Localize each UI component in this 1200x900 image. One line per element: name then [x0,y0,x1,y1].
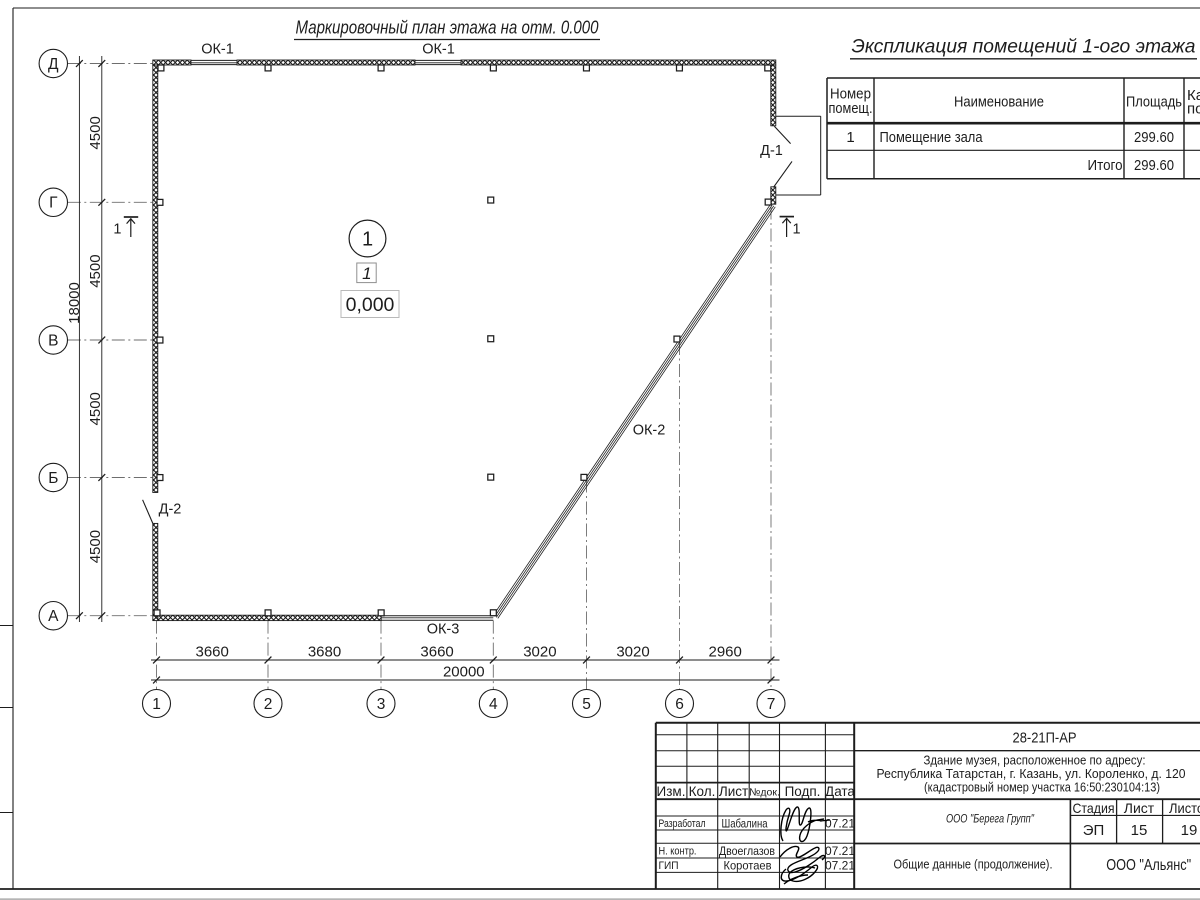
svg-text:7: 7 [767,696,776,713]
svg-text:1: 1 [362,228,373,250]
svg-text:Общие данные (продолжение).: Общие данные (продолжение). [894,857,1053,872]
svg-text:Двоеглазов: Двоеглазов [719,844,775,858]
svg-text:07.21: 07.21 [825,844,855,858]
svg-text:299.60: 299.60 [1134,157,1174,174]
svg-text:Листов: Листов [1169,800,1200,816]
svg-text:Коротаев: Коротаев [724,859,772,873]
svg-text:4500: 4500 [87,254,104,287]
svg-text:07.21: 07.21 [825,859,855,873]
svg-text:Лист: Лист [719,784,748,799]
svg-text:№док.: №док. [749,787,780,799]
svg-text:Б: Б [48,470,58,487]
svg-text:Экспликация помещений 1-ого эт: Экспликация помещений 1-ого этажа [852,36,1196,58]
svg-text:Изм.: Изм. [657,784,686,799]
svg-text:Стадия: Стадия [1073,800,1115,816]
svg-text:ЭП: ЭП [1083,822,1105,839]
svg-text:19: 19 [1181,822,1198,839]
svg-text:помещ.: помещ. [829,100,873,117]
svg-text:Н. контр.: Н. контр. [659,846,697,858]
svg-text:3680: 3680 [308,644,341,661]
svg-text:Д-1: Д-1 [760,143,783,159]
svg-text:Шабалина: Шабалина [722,817,768,831]
svg-text:20000: 20000 [443,664,485,681]
svg-text:Лист: Лист [1124,800,1155,816]
svg-text:Маркировочный план этажа на от: Маркировочный план этажа на отм. 0.000 [296,18,599,38]
svg-text:Г: Г [49,195,58,212]
svg-text:Помещение зала: Помещение зала [880,129,984,146]
svg-text:ОК-3: ОК-3 [427,622,460,638]
svg-text:(кадастровый номер участка 16:: (кадастровый номер участка 16:50:230104:… [924,779,1160,794]
svg-text:2960: 2960 [709,644,742,661]
svg-text:Разработал: Разработал [659,818,706,830]
svg-text:07.21: 07.21 [825,817,855,831]
svg-text:ГИП: ГИП [659,860,679,872]
svg-text:ООО "Берега Групп": ООО "Берега Групп" [946,812,1034,826]
svg-text:299.60: 299.60 [1134,129,1174,146]
svg-text:4500: 4500 [87,530,104,563]
svg-text:ОК-1: ОК-1 [422,42,455,58]
svg-text:5: 5 [582,696,591,713]
svg-text:18000: 18000 [66,282,83,324]
svg-text:Д-2: Д-2 [159,502,182,518]
svg-text:1: 1 [846,129,854,146]
svg-text:ООО "Альянс": ООО "Альянс" [1106,857,1191,874]
svg-text:А: А [48,608,59,625]
svg-text:3: 3 [377,696,386,713]
svg-text:ОК-1: ОК-1 [201,42,234,58]
svg-text:0,000: 0,000 [346,294,395,316]
svg-text:2: 2 [264,696,273,713]
svg-text:пож.: пож. [1187,101,1200,118]
svg-text:1: 1 [152,696,161,713]
svg-text:1: 1 [113,222,121,238]
svg-text:Подп.: Подп. [785,784,821,799]
svg-text:3020: 3020 [616,644,649,661]
svg-text:Наименование: Наименование [954,94,1044,111]
svg-text:Д: Д [48,56,59,73]
svg-text:В: В [48,332,58,349]
svg-text:3020: 3020 [523,644,556,661]
svg-text:Дата: Дата [825,784,855,799]
svg-text:15: 15 [1131,822,1148,839]
svg-text:Кол.: Кол. [689,784,716,799]
svg-text:6: 6 [675,696,684,713]
svg-text:4500: 4500 [87,116,104,149]
svg-text:4: 4 [489,696,498,713]
svg-text:1: 1 [793,222,801,238]
svg-text:3660: 3660 [196,644,229,661]
svg-text:Площадь: Площадь [1126,94,1182,111]
svg-text:28-21П-АР: 28-21П-АР [1013,730,1077,747]
svg-text:1: 1 [362,264,371,283]
svg-text:ОК-2: ОК-2 [633,423,666,439]
svg-text:3660: 3660 [420,644,453,661]
svg-text:4500: 4500 [87,392,104,425]
svg-text:Итого: Итого [1088,157,1123,174]
